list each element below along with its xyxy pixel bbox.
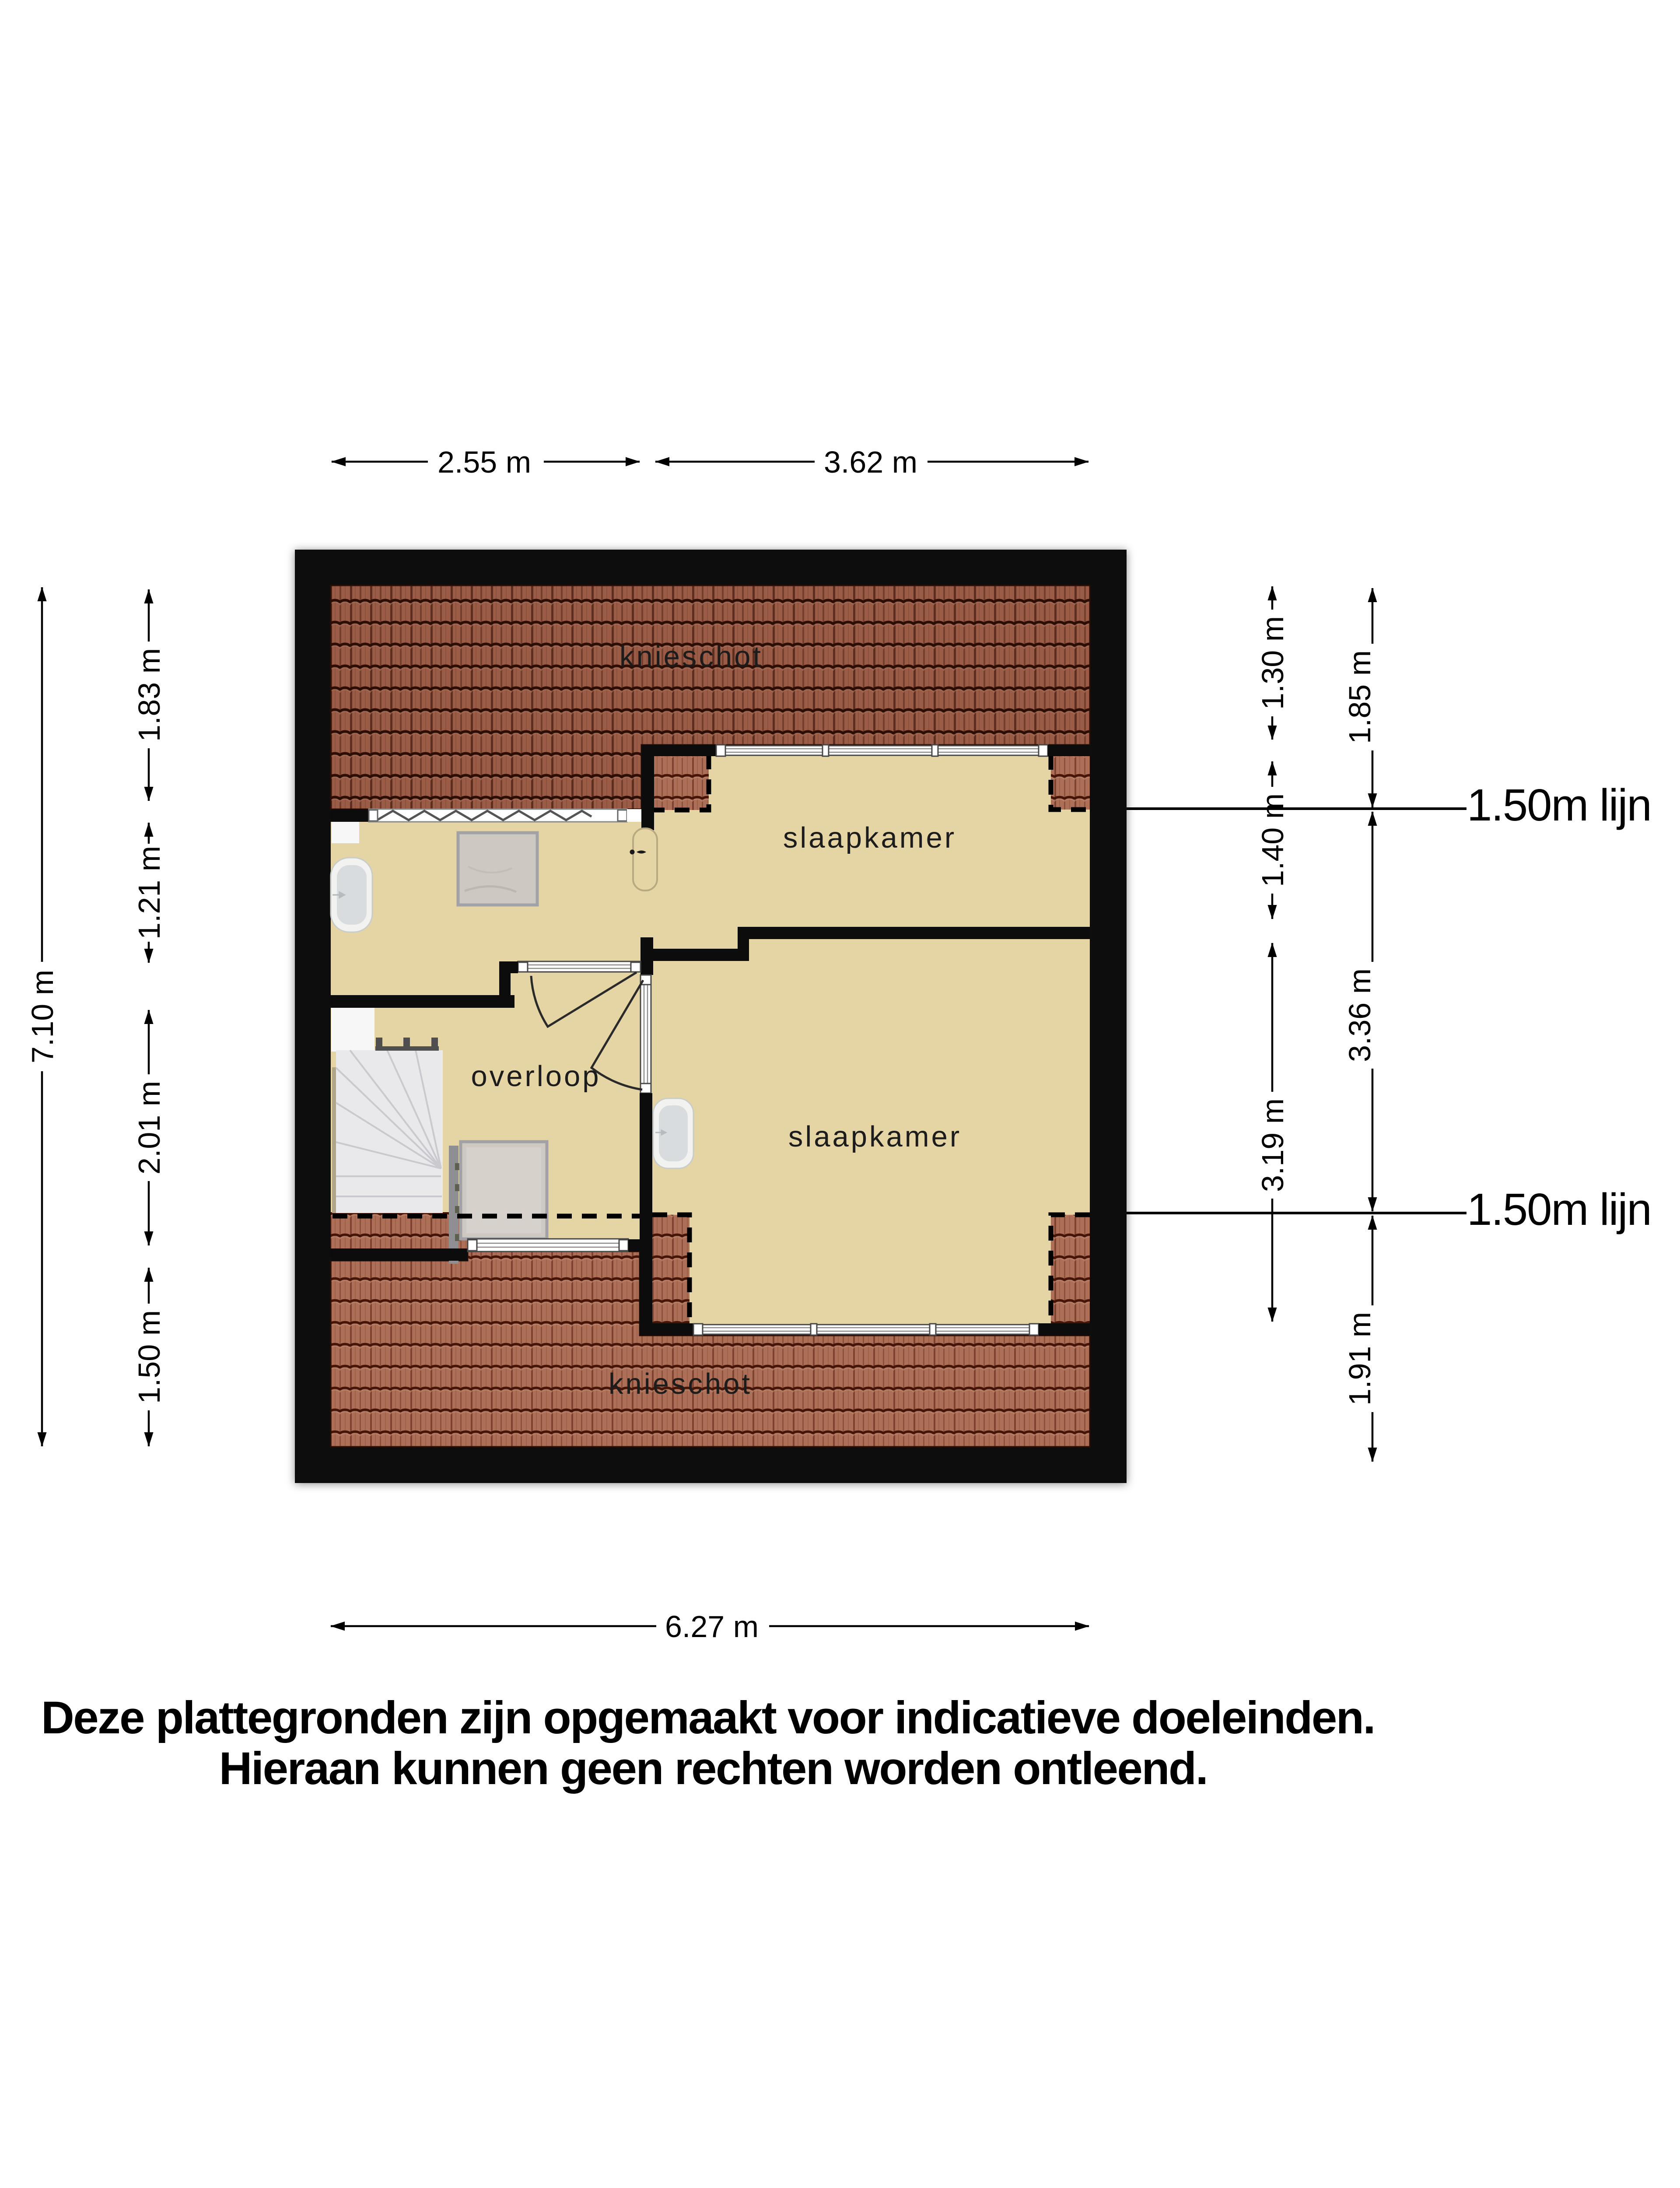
svg-text:1.83 m: 1.83 m bbox=[132, 648, 166, 742]
svg-text:1.85 m: 1.85 m bbox=[1343, 650, 1377, 744]
svg-text:1.91 m: 1.91 m bbox=[1343, 1312, 1377, 1406]
svg-text:1.50 m: 1.50 m bbox=[132, 1310, 166, 1404]
svg-text:3.62 m: 3.62 m bbox=[824, 445, 917, 479]
svg-text:Hieraan kunnen geen rechten wo: Hieraan kunnen geen rechten worden ontle… bbox=[219, 1743, 1207, 1794]
svg-text:2.01 m: 2.01 m bbox=[132, 1081, 166, 1175]
svg-text:3.36 m: 3.36 m bbox=[1343, 968, 1377, 1062]
svg-text:1.50m lijn: 1.50m lijn bbox=[1467, 780, 1651, 830]
svg-text:6.27 m: 6.27 m bbox=[665, 1609, 759, 1644]
svg-text:Deze plattegronden zijn opgema: Deze plattegronden zijn opgemaakt voor i… bbox=[41, 1692, 1375, 1743]
svg-text:overloop: overloop bbox=[471, 1060, 601, 1093]
svg-text:knieschot: knieschot bbox=[609, 1367, 752, 1400]
svg-text:7.10 m: 7.10 m bbox=[25, 970, 59, 1063]
svg-text:2.55 m: 2.55 m bbox=[437, 445, 531, 479]
svg-text:slaapkamer: slaapkamer bbox=[783, 821, 956, 854]
svg-text:1.50m lijn: 1.50m lijn bbox=[1467, 1184, 1651, 1234]
svg-text:slaapkamer: slaapkamer bbox=[788, 1120, 962, 1153]
svg-text:knieschot: knieschot bbox=[619, 640, 763, 673]
svg-text:3.19 m: 3.19 m bbox=[1256, 1098, 1290, 1192]
svg-text:1.30 m: 1.30 m bbox=[1256, 616, 1290, 710]
svg-text:1.21 m: 1.21 m bbox=[132, 846, 166, 940]
svg-text:1.40 m: 1.40 m bbox=[1256, 793, 1290, 887]
